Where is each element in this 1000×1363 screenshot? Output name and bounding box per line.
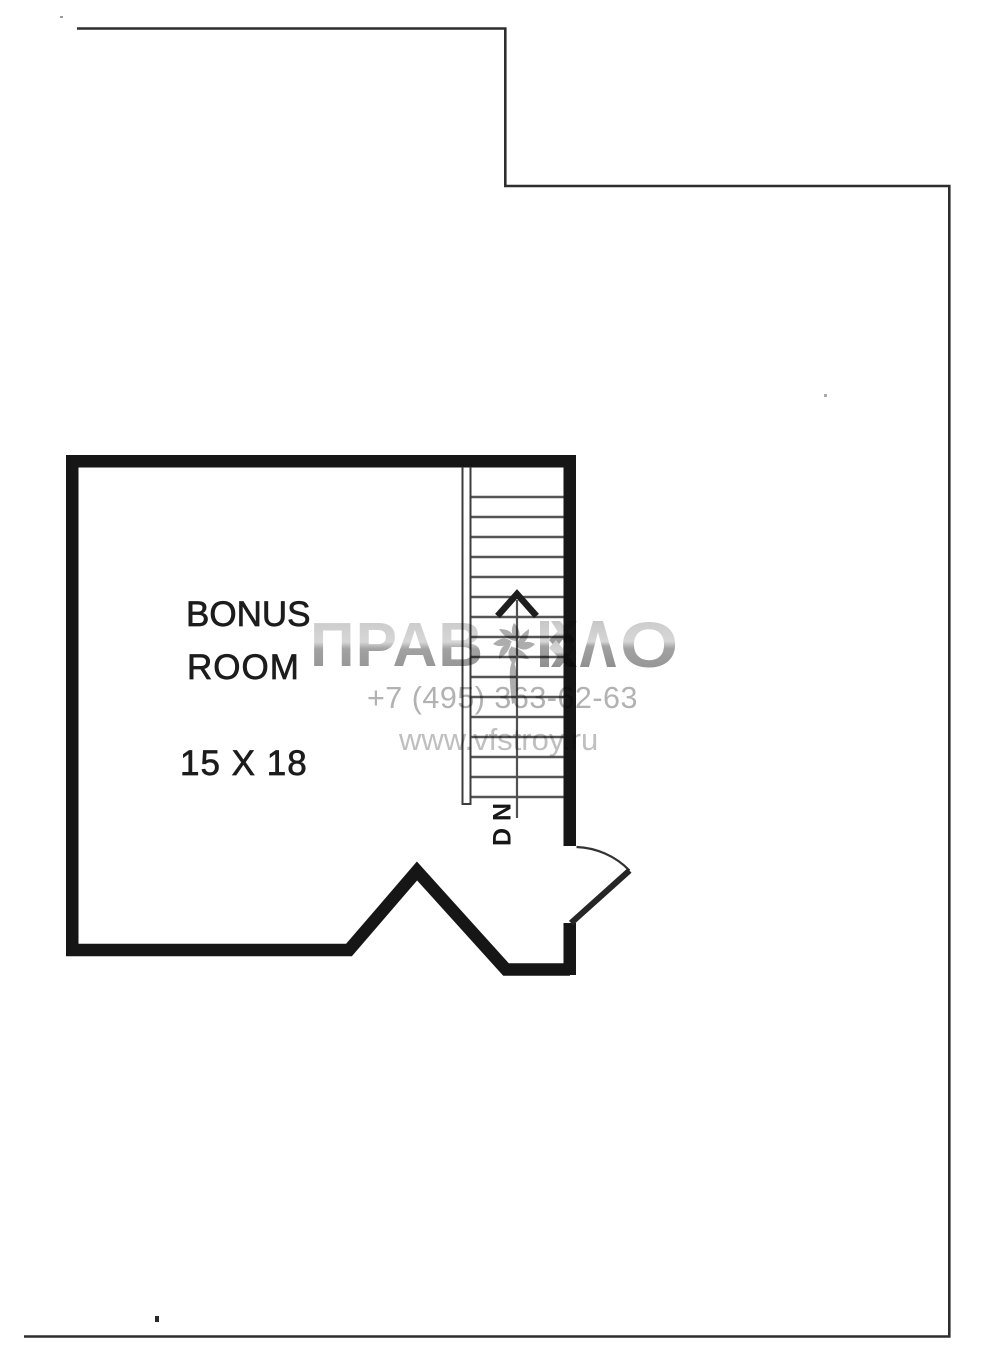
svg-text:BONUS: BONUS — [186, 595, 310, 634]
svg-text:+7 (495) 363-62-63: +7 (495) 363-62-63 — [367, 681, 638, 715]
svg-text:www.vfstroy.ru: www.vfstroy.ru — [398, 722, 598, 757]
svg-text:ROOM: ROOM — [187, 648, 300, 687]
svg-text:DN: DN — [489, 796, 517, 846]
svg-text:15 X 18: 15 X 18 — [180, 744, 308, 783]
svg-text:О: О — [620, 609, 678, 681]
svg-text:ПРАВ: ПРАВ — [310, 611, 484, 680]
